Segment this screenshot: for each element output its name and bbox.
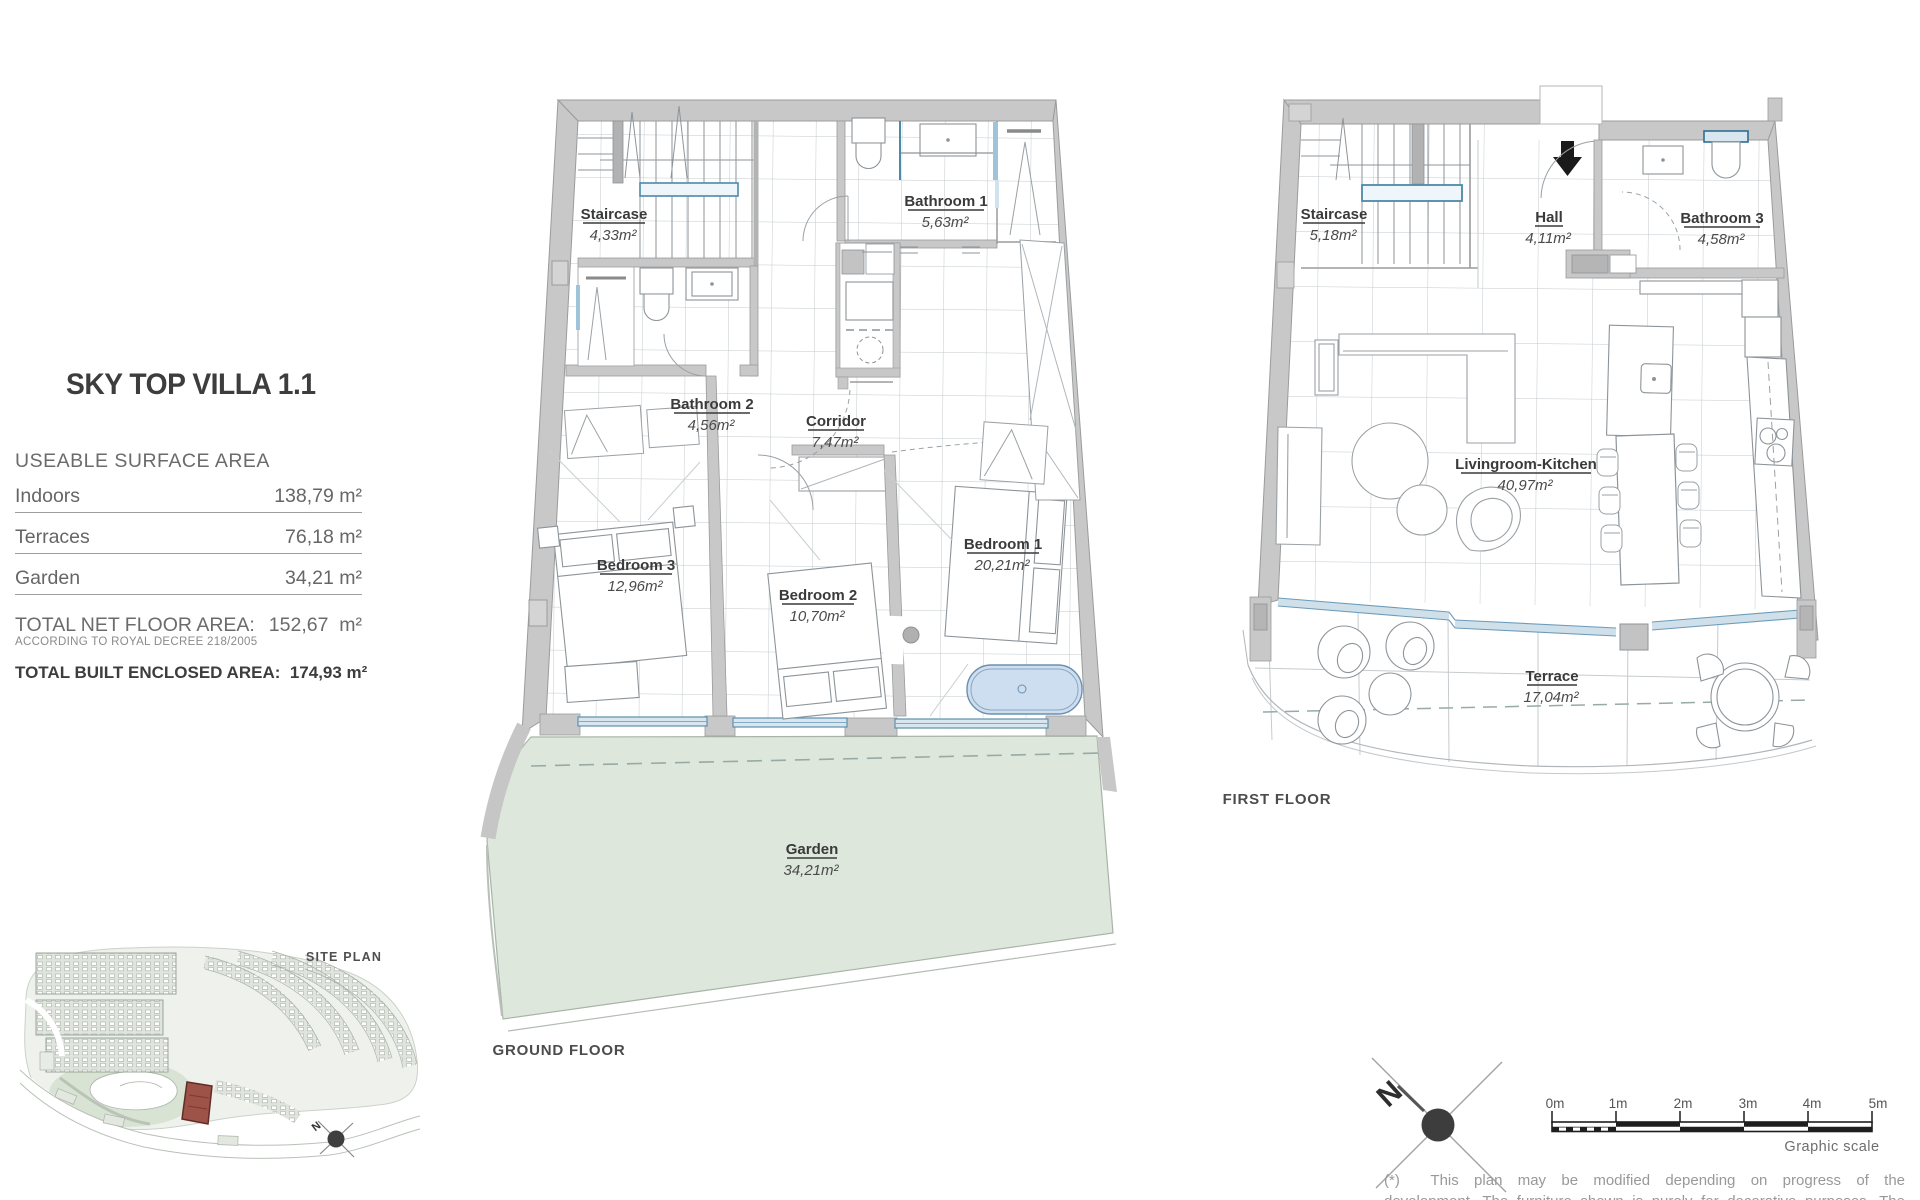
svg-text:N: N	[310, 1120, 324, 1134]
svg-text:N: N	[1371, 1075, 1409, 1114]
svg-text:17,04m²: 17,04m²	[1523, 689, 1579, 706]
svg-text:34,21m²: 34,21m²	[783, 862, 839, 879]
svg-text:5,18m²: 5,18m²	[1310, 227, 1358, 244]
svg-text:Graphic scale: Graphic scale	[1784, 1139, 1879, 1155]
svg-text:4,33m²: 4,33m²	[590, 227, 638, 244]
svg-text:12,96m²: 12,96m²	[607, 578, 663, 595]
svg-text:SITE PLAN: SITE PLAN	[306, 950, 382, 964]
svg-text:Corridor: Corridor	[806, 413, 866, 430]
svg-text:0m: 0m	[1546, 1096, 1565, 1111]
svg-text:3m: 3m	[1739, 1096, 1758, 1111]
svg-text:10,70m²: 10,70m²	[789, 608, 845, 625]
svg-text:4,56m²: 4,56m²	[688, 417, 736, 434]
svg-text:Garden: Garden	[786, 841, 839, 858]
svg-text:1m: 1m	[1609, 1096, 1628, 1111]
svg-text:7,47m²: 7,47m²	[812, 434, 860, 451]
svg-text:Staircase: Staircase	[581, 206, 648, 223]
svg-text:4m: 4m	[1803, 1096, 1822, 1111]
svg-text:FIRST FLOOR: FIRST FLOOR	[1223, 791, 1332, 808]
svg-text:20,21m²: 20,21m²	[973, 557, 1030, 574]
svg-text:4,58m²: 4,58m²	[1698, 231, 1746, 248]
svg-text:Bedroom 2: Bedroom 2	[779, 587, 857, 604]
svg-text:5m: 5m	[1869, 1096, 1888, 1111]
svg-text:5,63m²: 5,63m²	[922, 214, 970, 231]
svg-text:Bathroom 2: Bathroom 2	[670, 396, 753, 413]
svg-text:Terrace: Terrace	[1525, 668, 1578, 685]
svg-text:2m: 2m	[1674, 1096, 1693, 1111]
svg-text:40,97m²: 40,97m²	[1497, 477, 1553, 494]
svg-text:Bathroom 3: Bathroom 3	[1680, 210, 1763, 227]
svg-text:4,11m²: 4,11m²	[1525, 230, 1572, 247]
svg-text:Hall: Hall	[1535, 209, 1563, 226]
svg-text:Bedroom 3: Bedroom 3	[597, 557, 675, 574]
svg-text:Staircase: Staircase	[1301, 206, 1368, 223]
svg-text:Livingroom-Kitchen: Livingroom-Kitchen	[1455, 456, 1597, 473]
svg-text:Bathroom 1: Bathroom 1	[904, 193, 987, 210]
svg-text:GROUND FLOOR: GROUND FLOOR	[493, 1042, 626, 1059]
svg-text:Bedroom 1: Bedroom 1	[964, 536, 1042, 553]
